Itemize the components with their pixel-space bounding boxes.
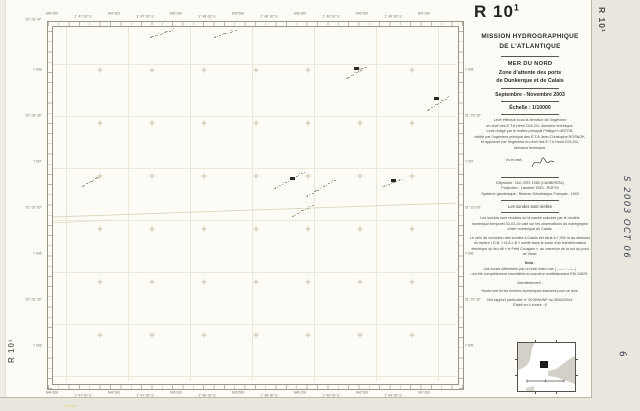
tick-label-top: 644 000 — [46, 12, 58, 15]
sounding-figure — [309, 194, 310, 195]
separator-rule — [501, 88, 559, 89]
handwritten-sheet-number: 6 — [616, 350, 627, 357]
frame-ticks-bottom — [48, 385, 463, 389]
sounding-figure — [95, 178, 97, 179]
graticule-cross — [410, 280, 415, 285]
sounding-figure — [447, 97, 448, 98]
tick-label-top: 1° 47' 30" E — [136, 15, 154, 18]
graticule-cross — [410, 121, 415, 126]
tick-label-bottom: 646 500 — [356, 391, 368, 394]
survey-credits: Levé effectué sous la direction de l'ing… — [468, 118, 592, 151]
org-line-2: DE L'ATLANTIQUE — [468, 42, 592, 52]
graticule-cross — [150, 68, 155, 73]
sounding-figure — [434, 106, 435, 107]
seamark-symbol — [391, 179, 396, 182]
tick-label-top: 1° 48' 00" E — [198, 15, 216, 18]
scanned-survey-sheet: { "sheet": { "id_main": "R 10", "id_sup"… — [0, 0, 640, 411]
sounding-figure — [152, 36, 153, 37]
tick-label-left: 7 098 — [34, 68, 42, 71]
sounding-figure — [274, 188, 276, 189]
sounding-figure — [217, 36, 218, 37]
separator-rule — [501, 177, 559, 178]
tick-label-top: 645 500 — [232, 12, 244, 15]
sounding-figure — [162, 33, 163, 34]
sounding-figure — [346, 78, 348, 79]
tick-label-top: 1° 49' 00" E — [322, 15, 340, 18]
corner-latitude-label: 51° 03' 47" — [26, 18, 42, 21]
sounding-figure — [328, 183, 330, 184]
sounding-figure — [401, 179, 402, 180]
sounding-figure — [304, 172, 305, 173]
edition-note: Établi en 4 zones : 6 — [468, 303, 592, 309]
graticule-cross — [358, 121, 363, 126]
graticule-cross — [358, 280, 363, 285]
sounding-figure — [388, 184, 390, 185]
graticule-cross — [254, 227, 259, 232]
sounding-figure — [298, 175, 299, 176]
tick-label-left: 51° 03' 00" — [26, 206, 42, 209]
validity-statement: Seuls font foi les fichiers numériques é… — [468, 289, 592, 295]
graticule-cross — [202, 333, 207, 338]
graticule-cross — [150, 227, 155, 232]
handwritten-archive-reference: S 2003 OCT 06 — [621, 176, 631, 259]
frame-ticks-right — [459, 22, 463, 389]
seamark-symbol — [354, 67, 359, 70]
sea-region: MER DU NORD — [468, 61, 592, 67]
tick-label-bottom: 645 000 — [170, 391, 182, 394]
graticule-cross — [98, 333, 103, 338]
signature-row: Vu et visé, — [468, 154, 592, 174]
warning-label: Avertissement : — [468, 281, 592, 287]
graticule-cross — [98, 280, 103, 285]
graticule-cross — [150, 121, 155, 126]
sounding-figure — [167, 31, 168, 32]
tick-label-bottom: 644 500 — [108, 391, 120, 394]
graticule-cross — [306, 227, 311, 232]
tick-label-bottom: 1° 49' 00" E — [322, 394, 340, 397]
sounding-figure — [89, 182, 90, 183]
sounding-figure — [302, 210, 304, 211]
graticule-cross — [150, 280, 155, 285]
sounding-figure — [314, 191, 315, 192]
sounding-figure — [326, 185, 327, 186]
text-line: Les sondes sont réduites de la marée cal… — [468, 216, 592, 222]
sounding-figure — [351, 75, 353, 76]
sounding-figure — [398, 180, 400, 181]
survey-subject: Zone d'attente des ports de Dunkerque et… — [468, 69, 592, 86]
sounding-figure — [391, 183, 392, 184]
graticule-cross — [254, 174, 259, 179]
inset-tick — [535, 391, 536, 394]
sounding-figure — [440, 102, 442, 103]
sounding-figure — [365, 67, 367, 68]
seamark-symbol — [434, 97, 439, 100]
sounding-figure — [305, 209, 306, 210]
separator-rule — [501, 200, 559, 201]
graticule-cross — [358, 174, 363, 179]
tick-label-left: 7 095 — [34, 344, 42, 347]
inset-tick — [575, 375, 578, 376]
graticule-cross — [150, 333, 155, 338]
sounding-figure — [84, 185, 85, 186]
tick-label-bottom: 644 000 — [46, 391, 58, 394]
tick-label-top: 1° 49' 30" E — [384, 15, 402, 18]
sounding-figure — [227, 33, 228, 34]
graticule-cross — [254, 121, 259, 126]
tick-label-bottom: 1° 48' 30" E — [260, 394, 278, 397]
inset-tick — [515, 359, 518, 360]
sounding-figure — [429, 109, 430, 110]
sounding-figure — [358, 71, 359, 72]
scan-artifact — [63, 405, 77, 407]
text-line: Système géodésique : Réseau Géodésique F… — [468, 192, 592, 198]
sounding-figure — [427, 110, 429, 111]
sounding-figure — [448, 96, 449, 97]
subject-line-1: Zone d'attente des ports — [468, 69, 592, 77]
chart-sheet-paper: R 101 51° 03' 47" 644 0001° 47' 00" E644… — [0, 0, 592, 398]
sounding-figure — [320, 188, 321, 189]
inset-tick — [575, 359, 578, 360]
sheet-id-main: R 10 — [474, 2, 514, 21]
tick-label-top: 646 500 — [356, 12, 368, 15]
tick-label-top: 644 500 — [108, 12, 120, 15]
text-line: directeur technique. — [468, 146, 592, 152]
sounding-figure — [277, 187, 278, 188]
sounding-figure — [285, 182, 287, 183]
sounding-figure — [383, 186, 385, 187]
sounding-figure — [93, 180, 94, 181]
subject-line-2: de Dunkerque et de Calais — [468, 77, 592, 85]
graticule-cross — [410, 174, 415, 179]
sounding-figure — [363, 68, 364, 69]
seamark-symbol — [290, 177, 295, 180]
graticule-cross — [306, 280, 311, 285]
graticule-cross — [306, 68, 311, 73]
sounding-figure — [173, 28, 174, 29]
sounding-figure — [348, 77, 349, 78]
inset-tick — [556, 391, 557, 394]
graticule-cross — [306, 121, 311, 126]
text-line: ont été complètement insonifiées au sond… — [468, 272, 592, 278]
graticule-cross — [254, 333, 259, 338]
org-line-1: MISSION HYDROGRAPHIQUE — [468, 32, 592, 42]
sounding-figure — [436, 104, 438, 105]
sounding-figure — [292, 216, 294, 217]
tick-label-top: 1° 48' 30" E — [260, 15, 278, 18]
sounding-figure — [300, 212, 301, 213]
graticule-cross — [98, 227, 103, 232]
tick-label-right: 7 095 — [465, 344, 473, 347]
sounding-figure — [312, 193, 314, 194]
sounding-figure — [295, 215, 296, 216]
tick-label-bottom: 1° 49' 30" E — [384, 394, 402, 397]
inset-tick — [556, 340, 557, 343]
sounding-figure — [86, 183, 88, 184]
separator-rule — [501, 101, 559, 102]
sounding-figure — [323, 186, 325, 187]
sounding-figure — [442, 100, 443, 101]
sounding-figure — [431, 107, 433, 108]
graticule-cross — [410, 227, 415, 232]
nota-text: Les zones délimitées par un trait mixte … — [468, 267, 592, 278]
title-block: MISSION HYDROGRAPHIQUE DE L'ATLANTIQUE M… — [468, 32, 592, 309]
text-line: de Vivier. — [468, 252, 592, 258]
datum-benchmark-note: Le zéro de réduction des sondes à Calais… — [468, 236, 592, 258]
tick-label-bottom: 1° 47' 30" E — [136, 394, 154, 397]
organization-name: MISSION HYDROGRAPHIQUE DE L'ATLANTIQUE — [468, 32, 592, 53]
inset-tick — [515, 375, 518, 376]
sounding-figure — [288, 181, 289, 182]
tide-reduction-note: Les sondes sont réduites de la marée cal… — [468, 216, 592, 233]
sounding-figure — [360, 70, 362, 71]
sounding-figure — [445, 99, 447, 100]
text-line: côtier numérique de Calais. — [468, 227, 592, 233]
sounding-figure — [353, 74, 354, 75]
tick-label-top: 1° 47' 00" E — [74, 15, 92, 18]
sounding-figure — [230, 32, 232, 33]
location-inset-map — [517, 342, 576, 392]
graticule-cross — [306, 174, 311, 179]
sounding-figure — [386, 185, 387, 186]
sounding-figure — [356, 72, 358, 73]
inset-coastline — [518, 343, 575, 391]
margin-sheet-label-top-right: R 10¹ — [597, 7, 607, 33]
map-scale: Échelle : 1/10000 — [468, 105, 592, 111]
graticule-cross — [358, 227, 363, 232]
graticule-cross — [98, 68, 103, 73]
geodesy-parameters: Ellipsoïde : IAG GRS 1980 (CANBERRA)Proj… — [468, 181, 592, 198]
sounding-figure — [334, 180, 336, 181]
separator-rule — [501, 56, 559, 57]
sounding-figure — [232, 31, 233, 32]
graticule-cross — [150, 174, 155, 179]
sounding-figure — [172, 30, 173, 31]
graticule-cross — [98, 121, 103, 126]
sounding-figure — [296, 176, 298, 177]
tick-label-bottom: 647 000 — [418, 391, 430, 394]
graticule-cross — [410, 333, 415, 338]
sounding-figure — [214, 37, 216, 38]
tick-label-left: 51° 02' 30" — [26, 298, 42, 301]
sounding-figure — [82, 186, 84, 187]
tick-label-bottom: 645 500 — [232, 391, 244, 394]
sounding-figure — [438, 103, 439, 104]
inset-tick — [535, 340, 536, 343]
tick-label-left: 51° 03' 30" — [26, 114, 42, 117]
tick-label-top: 645 000 — [170, 12, 182, 15]
sounding-figure — [301, 173, 303, 174]
sounding-figure — [222, 34, 223, 35]
sounding-figure — [297, 213, 299, 214]
tick-label-bottom: 1° 48' 00" E — [198, 394, 216, 397]
graticule-cross — [410, 68, 415, 73]
sounding-figure — [224, 33, 226, 34]
graticule-cross — [202, 227, 207, 232]
separator-rule — [501, 212, 559, 213]
tick-label-left: 7 096 — [34, 252, 42, 255]
sounding-figure — [312, 205, 314, 206]
graticule-cross — [254, 280, 259, 285]
sounding-figure — [331, 182, 332, 183]
sounding-figure — [219, 35, 221, 36]
sounding-figure — [307, 208, 309, 209]
sheet-identifier: R 101 — [474, 2, 520, 22]
graticule-cross — [306, 333, 311, 338]
margin-sheet-label-bottom-left: R 10¹ — [7, 338, 16, 363]
signature-icon — [529, 154, 555, 172]
sounding-figure — [282, 184, 283, 185]
sounding-figure — [91, 181, 93, 182]
graticule-cross — [202, 280, 207, 285]
sounding-figure — [317, 190, 319, 191]
separator-rule — [501, 114, 559, 115]
sounding-figure — [97, 177, 98, 178]
sounding-figure — [393, 182, 395, 183]
survey-map-area — [53, 27, 456, 381]
tick-label-left: 7 097 — [34, 160, 42, 163]
tick-label-bottom: 646 000 — [294, 391, 306, 394]
graticule-cross — [202, 174, 207, 179]
sounding-figure — [279, 185, 281, 186]
tick-label-bottom: 1° 47' 00" E — [74, 394, 92, 397]
soundings-heading: Les sondes sont réelles — [468, 204, 592, 209]
sounding-figure — [235, 30, 237, 31]
sheet-id-superscript: 1 — [514, 2, 520, 12]
tick-label-top: 646 000 — [294, 12, 306, 15]
sheet-left-edge — [0, 0, 6, 397]
sounding-figure — [310, 206, 311, 207]
graticule-cross — [202, 121, 207, 126]
graticule-cross — [202, 68, 207, 73]
visa-label: Vu et visé, — [505, 158, 522, 164]
sounding-figure — [157, 35, 158, 36]
sounding-figure — [396, 181, 397, 182]
survey-period: Septembre - Novembre 2003 — [468, 92, 592, 98]
survey-track-line — [53, 27, 456, 381]
tick-label-top: 647 000 — [418, 12, 430, 15]
graticule-cross — [358, 333, 363, 338]
graticule-cross — [254, 68, 259, 73]
sounding-figure — [306, 196, 308, 197]
